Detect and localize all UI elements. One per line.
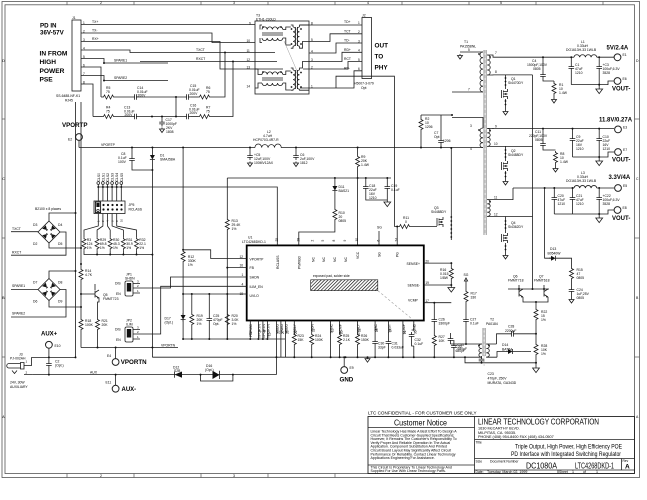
svg-text:CLS3: CLS3 xyxy=(111,173,115,182)
svg-text:5: 5 xyxy=(468,48,470,52)
svg-text:FMMT618: FMMT618 xyxy=(534,279,550,283)
svg-text:of: of xyxy=(583,470,586,474)
svg-text:Document Number: Document Number xyxy=(490,459,519,463)
svg-text:Si4470DY: Si4470DY xyxy=(508,81,524,85)
svg-text:MURATA, GA343D: MURATA, GA343D xyxy=(488,381,517,385)
svg-text:PHONE (408) 954-8400 FAX (408: PHONE (408) 954-8400 FAX (408) 434-0507 xyxy=(478,435,554,439)
svg-text:36V-57V: 36V-57V xyxy=(40,30,65,37)
svg-text:Opt: Opt xyxy=(361,86,367,90)
svg-text:75: 75 xyxy=(206,90,210,94)
svg-text:15: 15 xyxy=(375,328,379,332)
svg-text:1206: 1206 xyxy=(443,139,451,143)
svg-text:1%: 1% xyxy=(197,322,202,326)
svg-text:VOUT-: VOUT- xyxy=(612,87,630,93)
svg-text:RCLASS: RCLASS xyxy=(129,208,143,212)
svg-text:100K: 100K xyxy=(85,323,94,327)
svg-text:9: 9 xyxy=(249,21,251,25)
svg-text:exposed pad, solder side: exposed pad, solder side xyxy=(313,274,350,278)
svg-text:RXCT: RXCT xyxy=(12,251,21,255)
svg-text:AUX: AUX xyxy=(90,371,98,375)
svg-text:E1: E1 xyxy=(623,53,627,57)
svg-text:1210: 1210 xyxy=(576,202,584,206)
svg-text:30: 30 xyxy=(414,330,418,334)
svg-text:E3: E3 xyxy=(623,126,627,130)
svg-text:Si4362DY: Si4362DY xyxy=(508,225,524,229)
svg-text:3: 3 xyxy=(233,1,235,5)
svg-text:23: 23 xyxy=(276,330,280,334)
svg-text:12: 12 xyxy=(247,58,251,62)
svg-text:5: 5 xyxy=(358,58,360,62)
svg-text:1/8W: 1/8W xyxy=(440,276,449,280)
svg-text:3528: 3528 xyxy=(603,71,611,75)
svg-text:5: 5 xyxy=(500,1,502,5)
svg-text:ILIM: ILIM xyxy=(126,323,133,327)
svg-text:9: 9 xyxy=(343,240,347,242)
svg-text:3: 3 xyxy=(358,39,360,43)
svg-text:TD+: TD+ xyxy=(344,20,351,24)
svg-text:4: 4 xyxy=(83,46,85,50)
svg-text:27: 27 xyxy=(281,330,285,334)
svg-text:1812: 1812 xyxy=(300,161,308,165)
svg-text:TCT: TCT xyxy=(344,30,351,34)
svg-text:(Opt.): (Opt.) xyxy=(205,368,214,372)
svg-text:D2: D2 xyxy=(33,242,37,246)
svg-text:SENSE+: SENSE+ xyxy=(407,262,420,266)
svg-text:0805: 0805 xyxy=(577,276,585,280)
svg-text:8: 8 xyxy=(495,70,497,74)
svg-text:Size: Size xyxy=(476,459,483,463)
svg-text:RCLASS: RCLASS xyxy=(276,255,280,269)
svg-text:VOUT-: VOUT- xyxy=(612,158,630,164)
svg-text:Customer Notice: Customer Notice xyxy=(394,419,447,428)
svg-text:D8: D8 xyxy=(58,281,62,285)
svg-text:FMMT718: FMMT718 xyxy=(508,279,524,283)
svg-text:10: 10 xyxy=(247,39,251,43)
svg-text:B0540W: B0540W xyxy=(548,251,562,255)
svg-text:0805: 0805 xyxy=(535,138,543,142)
svg-text:BAS21: BAS21 xyxy=(339,189,350,193)
svg-text:RX+: RX+ xyxy=(92,37,99,41)
svg-text:1.4W: 1.4W xyxy=(559,91,568,95)
svg-text:Opt: Opt xyxy=(434,135,440,139)
svg-text:DO1613H-33 1WLB: DO1613H-33 1WLB xyxy=(566,48,597,52)
svg-text:10: 10 xyxy=(120,218,124,222)
svg-text:Date:: Date: xyxy=(476,470,484,474)
svg-text:1%: 1% xyxy=(100,246,105,250)
svg-text:11: 11 xyxy=(494,196,498,200)
svg-text:DIS: DIS xyxy=(115,282,121,286)
svg-text:VPORTP: VPORTP xyxy=(62,122,87,129)
svg-text:SMAJ58A: SMAJ58A xyxy=(160,158,176,162)
svg-text:SPARE1: SPARE1 xyxy=(12,284,25,288)
svg-text:UVLO: UVLO xyxy=(250,294,260,298)
svg-text:1%: 1% xyxy=(139,246,144,250)
svg-text:7: 7 xyxy=(83,72,85,76)
svg-text:7: 7 xyxy=(258,330,262,332)
svg-text:RJ45: RJ45 xyxy=(65,99,73,103)
svg-text:3: 3 xyxy=(470,124,472,128)
svg-text:TX-: TX- xyxy=(92,29,97,33)
svg-text:11: 11 xyxy=(247,49,251,53)
svg-text:0.1uF: 0.1uF xyxy=(415,342,424,346)
svg-text:E5: E5 xyxy=(623,184,627,188)
svg-text:26: 26 xyxy=(285,330,289,334)
svg-text:POWER: POWER xyxy=(40,68,65,75)
svg-text:4.7K: 4.7K xyxy=(85,273,93,277)
svg-text:Applications Engineering For A: Applications Engineering For Assistance. xyxy=(371,456,435,460)
svg-text:10: 10 xyxy=(355,238,359,242)
svg-text:330: 330 xyxy=(471,296,477,300)
svg-text:E10: E10 xyxy=(55,344,61,348)
svg-text:EN: EN xyxy=(116,338,121,342)
svg-text:A: A xyxy=(625,464,630,471)
svg-text:E2: E2 xyxy=(68,138,72,142)
svg-text:D9: D9 xyxy=(58,300,62,304)
svg-text:75: 75 xyxy=(106,90,110,94)
svg-text:1%: 1% xyxy=(188,263,193,267)
svg-text:E11: E11 xyxy=(106,381,112,385)
svg-text:FB: FB xyxy=(250,266,255,270)
svg-text:TXCT: TXCT xyxy=(12,227,21,231)
svg-text:13: 13 xyxy=(331,328,335,332)
svg-text:13: 13 xyxy=(247,65,251,69)
svg-text:1.4W: 1.4W xyxy=(361,163,370,167)
svg-text:E7: E7 xyxy=(623,148,627,152)
svg-text:1: 1 xyxy=(596,470,598,474)
svg-text:200V: 200V xyxy=(190,92,199,96)
svg-text:SPARE2: SPARE2 xyxy=(114,76,127,80)
svg-text:100MV12AX: 100MV12AX xyxy=(254,161,274,165)
svg-text:2: 2 xyxy=(83,29,85,33)
svg-text:D7: D7 xyxy=(33,281,37,285)
svg-text:1%: 1% xyxy=(541,318,546,322)
svg-text:VCMP: VCMP xyxy=(408,299,419,303)
svg-text:11: 11 xyxy=(312,328,316,332)
svg-text:AUX-: AUX- xyxy=(122,387,137,393)
svg-text:1210: 1210 xyxy=(576,147,584,151)
svg-text:E8: E8 xyxy=(623,206,627,210)
svg-text:DC1080A: DC1080A xyxy=(526,462,558,471)
svg-text:VPORTP: VPORTP xyxy=(250,257,265,261)
svg-text:1%: 1% xyxy=(541,352,546,356)
svg-text:2: 2 xyxy=(100,1,102,5)
svg-text:1.4W: 1.4W xyxy=(560,160,569,164)
svg-text:Si4488DY: Si4488DY xyxy=(508,153,524,157)
svg-text:OUT: OUT xyxy=(375,43,389,50)
svg-text:2: 2 xyxy=(100,474,102,478)
svg-text:D4: D4 xyxy=(58,223,62,227)
svg-text:6: 6 xyxy=(83,63,85,67)
svg-text:8: 8 xyxy=(332,240,336,242)
svg-text:B2100 x 8 places: B2100 x 8 places xyxy=(35,207,61,211)
svg-text:U1: U1 xyxy=(248,236,252,240)
svg-text:1%: 1% xyxy=(126,246,131,250)
svg-text:TD-: TD- xyxy=(344,39,350,43)
svg-text:1210: 1210 xyxy=(575,71,583,75)
svg-text:2: 2 xyxy=(358,30,360,34)
svg-text:2: 2 xyxy=(311,240,315,242)
svg-text:LTC CONFIDENTIAL - FOR CUSTOME: LTC CONFIDENTIAL - FOR CUSTOMER USE ONLY xyxy=(368,411,477,416)
svg-text:T1: T1 xyxy=(464,40,468,44)
svg-text:4: 4 xyxy=(470,147,472,151)
svg-text:200V: 200V xyxy=(138,94,147,98)
svg-text:DO1613H-33 1WLB: DO1613H-33 1WLB xyxy=(566,179,597,183)
svg-text:11.8V/0.27A: 11.8V/0.27A xyxy=(599,118,633,124)
svg-text:NC: NC xyxy=(344,257,348,262)
svg-text:RXCT: RXCT xyxy=(196,57,205,61)
svg-text:15K: 15K xyxy=(298,338,305,342)
svg-text:IN FROM: IN FROM xyxy=(40,51,68,58)
svg-text:28: 28 xyxy=(296,238,300,242)
svg-text:SG: SG xyxy=(377,226,382,230)
svg-text:PA0184: PA0184 xyxy=(486,322,498,326)
svg-text:CLS1: CLS1 xyxy=(101,173,105,182)
svg-text:20K: 20K xyxy=(102,323,109,327)
svg-text:3: 3 xyxy=(263,330,267,332)
svg-text:3528: 3528 xyxy=(603,202,611,206)
svg-text:GND: GND xyxy=(340,377,354,384)
svg-text:3: 3 xyxy=(83,38,85,42)
svg-text:21: 21 xyxy=(403,330,407,334)
svg-text:C23: C23 xyxy=(488,372,494,376)
svg-text:(Opt.): (Opt.) xyxy=(55,364,64,368)
svg-text:0805: 0805 xyxy=(339,219,347,223)
svg-text:1: 1 xyxy=(83,21,85,25)
svg-text:150K: 150K xyxy=(361,338,370,342)
svg-text:14: 14 xyxy=(388,328,392,332)
svg-text:1%: 1% xyxy=(232,227,237,231)
svg-text:LINEAR TECHNOLOGY CORPORATION: LINEAR TECHNOLOGY CORPORATION xyxy=(478,418,599,427)
svg-text:CLS2: CLS2 xyxy=(106,173,110,182)
svg-text:CLS4: CLS4 xyxy=(115,173,119,182)
svg-text:1210: 1210 xyxy=(369,196,377,200)
svg-text:D3: D3 xyxy=(33,223,37,227)
svg-text:5: 5 xyxy=(321,240,325,242)
svg-text:24V, 30W: 24V, 30W xyxy=(10,381,25,385)
svg-text:16: 16 xyxy=(240,264,244,268)
svg-text:12: 12 xyxy=(357,328,361,332)
svg-text:VCC: VCC xyxy=(356,251,360,259)
svg-text:PHY: PHY xyxy=(375,65,389,72)
svg-text:0805: 0805 xyxy=(577,296,585,300)
svg-text:D5: D5 xyxy=(58,242,62,246)
svg-text:20: 20 xyxy=(425,259,429,263)
svg-text:3300pF: 3300pF xyxy=(439,322,451,326)
svg-text:14: 14 xyxy=(247,84,251,88)
svg-text:PJ-002AH: PJ-002AH xyxy=(10,357,26,361)
svg-text:SHDN: SHDN xyxy=(250,276,260,280)
svg-text:8: 8 xyxy=(83,80,85,84)
svg-text:200V: 200V xyxy=(125,113,134,117)
svg-text:75: 75 xyxy=(206,110,210,114)
svg-text:SS-6488-NF-K1: SS-6488-NF-K1 xyxy=(56,94,80,98)
svg-text:SHDN: SHDN xyxy=(125,277,135,281)
svg-text:0805: 0805 xyxy=(533,67,541,71)
svg-text:Tuesday, March 02, 1999: Tuesday, March 02, 1999 xyxy=(487,470,527,474)
svg-text:7: 7 xyxy=(468,88,470,92)
svg-text:SG: SG xyxy=(464,273,469,277)
svg-text:1%: 1% xyxy=(87,246,92,250)
svg-text:E9: E9 xyxy=(350,366,354,370)
svg-text:CLS5: CLS5 xyxy=(120,173,124,182)
svg-text:D6: D6 xyxy=(33,300,37,304)
svg-text:VPORTP: VPORTP xyxy=(101,143,116,147)
svg-text:6: 6 xyxy=(377,240,381,242)
svg-text:3: 3 xyxy=(233,474,235,478)
svg-text:470pF, 250V: 470pF, 250V xyxy=(488,377,508,381)
svg-text:33pF: 33pF xyxy=(378,346,386,350)
svg-text:0: 0 xyxy=(405,220,407,224)
svg-text:E6: E6 xyxy=(623,77,627,81)
svg-text:6: 6 xyxy=(358,67,360,71)
svg-text:17: 17 xyxy=(425,299,429,303)
svg-text:24: 24 xyxy=(395,238,399,242)
svg-text:E4: E4 xyxy=(107,354,111,358)
svg-text:SPARE1: SPARE1 xyxy=(114,59,127,63)
svg-text:200V: 200V xyxy=(190,111,199,115)
svg-text:VPORTN: VPORTN xyxy=(121,359,147,366)
svg-text:PG: PG xyxy=(396,252,400,257)
svg-text:10: 10 xyxy=(494,142,498,146)
svg-text:SG: SG xyxy=(378,252,382,257)
svg-text:J2: J2 xyxy=(362,14,366,18)
svg-text:AUX+: AUX+ xyxy=(41,331,58,337)
svg-text:100K: 100K xyxy=(315,338,324,342)
svg-text:1: 1 xyxy=(358,21,360,25)
svg-text:RD+: RD+ xyxy=(344,48,351,52)
svg-text:Si4488DY: Si4488DY xyxy=(431,210,447,214)
svg-text:1%: 1% xyxy=(113,246,118,250)
svg-text:0.1uF: 0.1uF xyxy=(470,322,479,326)
svg-text:NC: NC xyxy=(312,257,316,262)
svg-text:10K: 10K xyxy=(439,339,446,343)
svg-text:Opt.: Opt. xyxy=(213,322,219,326)
svg-text:1210: 1210 xyxy=(603,147,611,151)
svg-text:19: 19 xyxy=(267,332,271,336)
svg-text:ILIM_EN: ILIM_EN xyxy=(250,285,264,289)
svg-text:0.033uF: 0.033uF xyxy=(392,346,404,350)
svg-text:1: 1 xyxy=(572,470,574,474)
svg-text:SPARE2: SPARE2 xyxy=(12,312,25,316)
svg-text:JP5: JP5 xyxy=(129,203,135,207)
svg-text:Supplied For Use With Linear T: Supplied For Use With Linear Technology … xyxy=(371,469,446,473)
svg-text:DIS: DIS xyxy=(115,328,121,332)
svg-text:Sheet: Sheet xyxy=(559,470,568,474)
svg-text:RCT: RCT xyxy=(344,57,351,61)
svg-text:1210: 1210 xyxy=(558,202,566,206)
svg-text:PD IN: PD IN xyxy=(40,23,57,30)
svg-text:9: 9 xyxy=(495,125,497,129)
svg-text:CLS0: CLS0 xyxy=(97,173,101,182)
svg-text:680pF: 680pF xyxy=(456,349,466,353)
svg-text:HIGH: HIGH xyxy=(40,59,57,66)
svg-text:FMMT723: FMMT723 xyxy=(103,297,119,301)
svg-text:SENSE-: SENSE- xyxy=(408,284,421,288)
svg-text:C33: C33 xyxy=(456,345,462,349)
svg-text:100V: 100V xyxy=(118,160,127,164)
svg-text:5: 5 xyxy=(83,55,85,59)
svg-text:0.1uF: 0.1uF xyxy=(391,188,400,192)
svg-text:2.1K: 2.1K xyxy=(343,338,351,342)
svg-text:Rev: Rev xyxy=(623,459,629,463)
svg-text:Triple Output, High Power, Hig: Triple Output, High Power, High Efficien… xyxy=(515,444,622,451)
svg-text:PD Interface with Integrated S: PD Interface with Integrated Switching R… xyxy=(511,451,622,458)
svg-text:Title: Title xyxy=(476,440,482,444)
svg-text:TXCT: TXCT xyxy=(196,48,205,52)
svg-text:BAT54: BAT54 xyxy=(502,347,512,351)
svg-text:(Opt.): (Opt.) xyxy=(165,321,174,325)
svg-text:PSE: PSE xyxy=(40,77,54,84)
svg-text:VOUT-: VOUT- xyxy=(612,216,630,222)
svg-text:4: 4 xyxy=(367,1,369,5)
svg-text:TO: TO xyxy=(375,54,384,61)
svg-text:1%: 1% xyxy=(232,322,237,326)
svg-text:LTC4268DKD-1: LTC4268DKD-1 xyxy=(575,462,614,471)
svg-text:J1: J1 xyxy=(72,16,76,20)
svg-text:NC: NC xyxy=(333,257,337,262)
svg-text:75: 75 xyxy=(106,110,110,114)
svg-text:LTC4268DKD-1: LTC4268DKD-1 xyxy=(242,240,266,244)
svg-text:1808: 1808 xyxy=(166,130,174,134)
svg-text:NC: NC xyxy=(322,257,326,262)
svg-text:7: 7 xyxy=(495,51,497,55)
svg-text:12: 12 xyxy=(494,213,498,217)
svg-text:3.3V/4A: 3.3V/4A xyxy=(609,175,631,181)
svg-text:PWRGD: PWRGD xyxy=(297,255,301,269)
svg-text:AUXILIARY: AUXILIARY xyxy=(10,385,28,389)
svg-text:T2: T2 xyxy=(490,318,494,322)
svg-text:EN: EN xyxy=(116,292,121,296)
svg-text:4: 4 xyxy=(358,49,360,53)
svg-text:5V/2.4A: 5V/2.4A xyxy=(607,46,629,52)
svg-text:TX+: TX+ xyxy=(92,20,98,24)
svg-text:1206: 1206 xyxy=(425,125,433,129)
svg-text:HCP0703-4R7-R: HCP0703-4R7-R xyxy=(253,138,279,142)
svg-text:RD-: RD- xyxy=(344,67,350,71)
svg-text:2200pF: 2200pF xyxy=(505,329,517,333)
svg-text:VPORTN: VPORTN xyxy=(161,343,176,347)
